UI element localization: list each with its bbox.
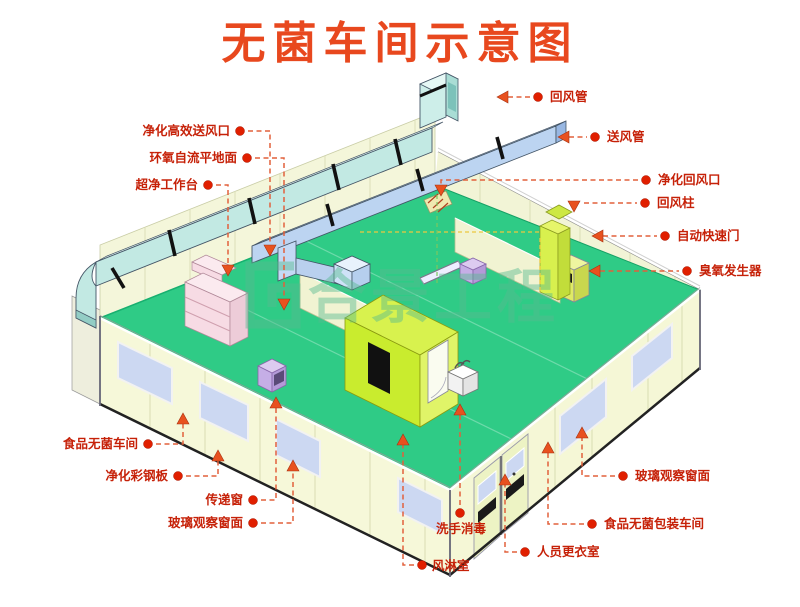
svg-text:风淋室: 风淋室: [432, 558, 470, 573]
door-knob: [513, 473, 516, 476]
leader-dot: [456, 509, 465, 518]
svg-text:送风管: 送风管: [606, 129, 645, 144]
page-title: 无菌车间示意图: [222, 18, 579, 69]
leader-dot: [619, 472, 628, 481]
svg-text:回风柱: 回风柱: [657, 195, 695, 210]
label-return-air-column: 回风柱: [568, 195, 695, 212]
svg-text:玻璃观察窗面: 玻璃观察窗面: [168, 515, 244, 530]
svg-text:食品无菌包装车间: 食品无菌包装车间: [603, 516, 704, 531]
leader-dot: [418, 561, 427, 570]
leader-dot: [588, 520, 597, 529]
svg-text:臭氧发生器: 臭氧发生器: [699, 263, 762, 278]
leader-dot: [243, 154, 252, 163]
leader-dot: [683, 267, 692, 276]
svg-text:人员更衣室: 人员更衣室: [537, 544, 600, 559]
leader-dot: [642, 176, 651, 185]
leader-dot: [174, 472, 183, 481]
label-supply-air-duct: 送风管: [558, 129, 645, 144]
svg-text:净化高效送风口: 净化高效送风口: [142, 123, 230, 138]
left-arrow-icon: [497, 91, 508, 103]
svg-text:净化彩钢板: 净化彩钢板: [105, 468, 168, 483]
svg-text:超净工作台: 超净工作台: [134, 177, 198, 192]
svg-text:净化回风口: 净化回风口: [658, 172, 721, 187]
leader-dot: [144, 440, 153, 449]
watermark-text: 合景工程: [308, 263, 560, 331]
leader-dot: [661, 232, 670, 241]
svg-text:传递窗: 传递窗: [204, 492, 243, 507]
leader-dot: [204, 181, 213, 190]
return-air-riser: [420, 73, 458, 128]
cleanroom-schematic: 合景工程 净化高效送风口 环氧自流平地面 超净工作台 食品无菌车间 净化彩钢板: [0, 0, 800, 607]
svg-text:回风管: 回风管: [550, 89, 588, 104]
svg-text:食品无菌车间: 食品无菌车间: [62, 436, 138, 451]
leader-dot: [236, 127, 245, 136]
leader-dot: [591, 133, 600, 142]
svg-text:自动快速门: 自动快速门: [677, 228, 740, 243]
down-arrow-icon: [568, 201, 580, 212]
leader-dot: [641, 199, 650, 208]
svg-text:洗手消毒: 洗手消毒: [436, 521, 487, 536]
svg-text:环氧自流平地面: 环氧自流平地面: [149, 150, 237, 165]
leader-dot: [249, 496, 258, 505]
label-return-air-duct: 回风管: [497, 89, 588, 104]
svg-text:玻璃观察窗面: 玻璃观察窗面: [635, 468, 711, 483]
diagram-canvas: 合景工程 净化高效送风口 环氧自流平地面 超净工作台 食品无菌车间 净化彩钢板: [0, 0, 800, 607]
leader-dot: [534, 93, 543, 102]
leader-dot: [521, 548, 530, 557]
leader-dot: [249, 519, 258, 528]
pass-window-box: [258, 359, 286, 392]
